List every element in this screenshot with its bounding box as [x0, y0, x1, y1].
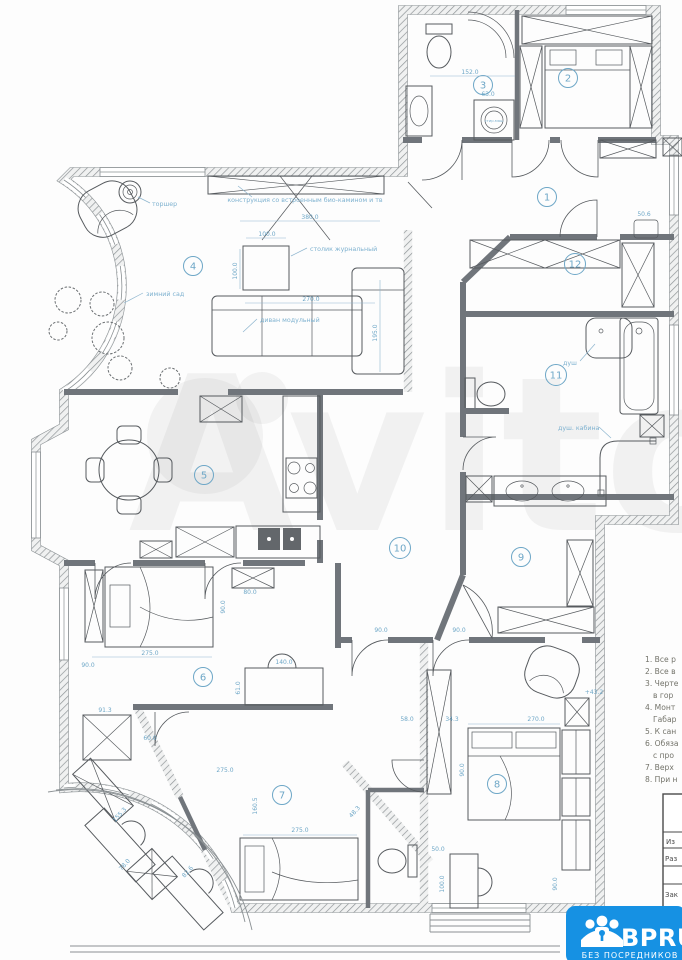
svg-text:275.0: 275.0 — [141, 650, 158, 657]
svg-text:Габар: Габар — [653, 715, 677, 724]
coffee-table — [243, 246, 289, 290]
svg-text:48.3: 48.3 — [348, 805, 362, 820]
svg-text:6. Обяза: 6. Обяза — [645, 739, 679, 748]
svg-text:58.0: 58.0 — [400, 716, 414, 723]
svg-text:270.0: 270.0 — [527, 716, 544, 723]
svg-text:50.6: 50.6 — [637, 211, 651, 218]
svg-text:11: 11 — [550, 371, 563, 382]
svg-text:275.0: 275.0 — [291, 827, 308, 834]
room-label-8: 8 — [488, 775, 507, 794]
svg-text:90.0: 90.0 — [552, 877, 559, 891]
svg-text:60.0: 60.0 — [143, 735, 157, 742]
svg-text:7. Верх: 7. Верх — [645, 763, 674, 772]
svg-text:34.3: 34.3 — [445, 716, 459, 723]
svg-text:100.0: 100.0 — [439, 875, 446, 892]
svg-text:50.0: 50.0 — [431, 846, 445, 853]
svg-text:7: 7 — [279, 791, 285, 802]
svg-text:78.0: 78.0 — [118, 858, 132, 873]
room-label-2: 2 — [559, 69, 578, 88]
room-label-4: 4 — [184, 257, 203, 276]
svg-text:9: 9 — [518, 553, 524, 564]
bed-room8 — [468, 728, 560, 820]
title-block: Из Раз Зак — [663, 794, 682, 914]
svg-text:90.0: 90.0 — [459, 763, 466, 777]
svg-text:275.0: 275.0 — [216, 767, 233, 774]
chair-room8 — [478, 868, 492, 896]
svg-text:в гор: в гор — [653, 691, 674, 700]
desk-room8 — [450, 854, 478, 908]
svg-text:155.3: 155.3 — [112, 806, 129, 824]
svg-text:152.0: 152.0 — [461, 69, 478, 76]
bed-room7 — [240, 838, 358, 900]
svg-text:61.0: 61.0 — [235, 681, 242, 695]
svg-text:91.3: 91.3 — [98, 707, 112, 714]
svg-text:100.0: 100.0 — [232, 262, 239, 279]
armchair-room8 — [519, 641, 584, 704]
coffee-table-label: столик журнальный — [310, 245, 377, 253]
room8-bedroom — [427, 641, 590, 908]
svg-text:140.0: 140.0 — [275, 659, 292, 666]
svg-text:Из: Из — [666, 838, 675, 846]
svg-text:90.0: 90.0 — [220, 600, 227, 614]
svg-text:82.6: 82.6 — [181, 865, 195, 880]
shower-label: душ — [563, 360, 577, 367]
floor-plan-drawing: Avito — [0, 0, 682, 960]
svg-text:3: 3 — [480, 81, 486, 92]
svg-text:с про: с про — [653, 751, 674, 760]
svg-text:160.5: 160.5 — [252, 797, 259, 814]
svg-text:90.0: 90.0 — [81, 662, 95, 669]
room-label-7: 7 — [273, 786, 292, 805]
floor-plan-image: Avito — [0, 0, 682, 960]
room12-wardrobes — [470, 240, 654, 307]
bpru-brand-text: BPRU — [621, 924, 682, 952]
svg-text:8. При н: 8. При н — [645, 775, 678, 784]
svg-text:100.0: 100.0 — [258, 231, 275, 238]
bpru-tagline-text: БЕЗ ПОСРЕДНИКОВ — [582, 951, 679, 960]
svg-text:10: 10 — [394, 544, 407, 555]
svg-text:Раз: Раз — [665, 855, 678, 863]
winter-garden-label: зимний сад — [146, 290, 185, 298]
svg-text:12: 12 — [569, 260, 582, 271]
desk-room6 — [245, 668, 323, 705]
svg-text:8: 8 — [494, 780, 500, 791]
room2-furniture — [520, 16, 652, 128]
shower-cabin-label: душ. кабина — [558, 424, 600, 432]
svg-text:6: 6 — [200, 673, 206, 684]
svg-text:90.0: 90.0 — [374, 627, 388, 634]
svg-text:Зак: Зак — [665, 891, 678, 899]
shower-corner-room3 — [468, 12, 514, 58]
svg-text:195.0: 195.0 — [372, 324, 379, 341]
svg-text:80.0: 80.0 — [243, 589, 257, 596]
svg-text:2. Все в: 2. Все в — [645, 667, 676, 676]
sofa-label: диван модульный — [260, 316, 320, 324]
svg-text:1. Все р: 1. Все р — [645, 655, 676, 664]
room-label-6: 6 — [194, 668, 213, 687]
bpru-logo: BPRU БЕЗ ПОСРЕДНИКОВ — [566, 906, 682, 960]
svg-text:270.0: 270.0 — [302, 296, 319, 303]
floor-lamp-label: торшер — [152, 201, 177, 208]
toilet-room3 — [427, 36, 451, 68]
svg-text:5: 5 — [201, 471, 207, 482]
tv-unit-label: конструкция со встроенным био-камином и … — [227, 196, 383, 204]
wc-bottom — [378, 845, 417, 877]
svg-text:4. Монт: 4. Монт — [645, 703, 676, 712]
notes-list: 1. Все р 2. Все в 3. Черте в гор 4. Монт… — [645, 655, 679, 784]
room-label-1: 1 — [538, 188, 557, 207]
toilet-wc — [378, 849, 406, 873]
svg-text:3. Черте: 3. Черте — [645, 679, 679, 688]
sink-room3 — [410, 96, 428, 126]
svg-text:5. К сан: 5. К сан — [645, 727, 676, 736]
svg-text:380.0: 380.0 — [301, 214, 318, 221]
bed-room2 — [545, 46, 630, 128]
svg-text:4: 4 — [190, 262, 196, 273]
svg-text:2: 2 — [565, 74, 571, 85]
svg-text:63.0: 63.0 — [481, 91, 495, 98]
svg-text:+43.2: +43.2 — [585, 689, 604, 696]
washing-machine-label: стир.маш — [484, 118, 504, 123]
svg-text:90.0: 90.0 — [452, 627, 466, 634]
svg-text:1: 1 — [544, 193, 550, 204]
